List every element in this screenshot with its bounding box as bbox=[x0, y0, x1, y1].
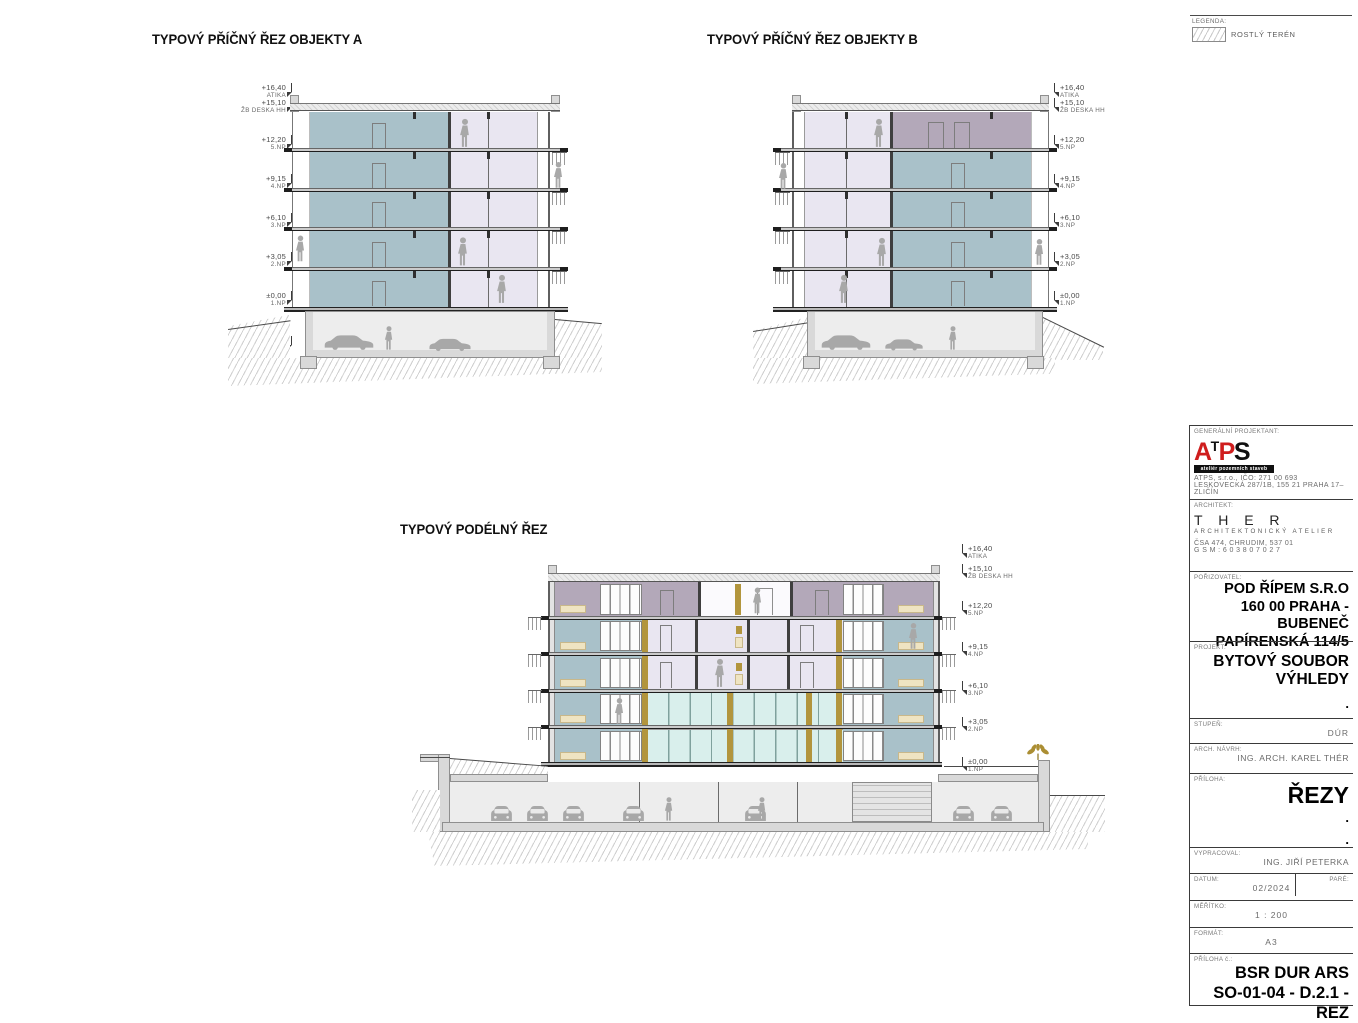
furniture bbox=[898, 715, 924, 723]
wall-tick bbox=[990, 152, 993, 159]
end-wall bbox=[933, 582, 940, 765]
wood-wall-cut bbox=[836, 619, 842, 652]
garage-ceiling bbox=[938, 774, 1038, 782]
level-mark: +12,205.NP bbox=[968, 602, 992, 617]
loggia bbox=[292, 271, 310, 307]
person-icon bbox=[714, 658, 726, 688]
wall-tick bbox=[990, 231, 993, 238]
furniture bbox=[560, 642, 586, 650]
wall-tick bbox=[487, 152, 490, 159]
wall-tick bbox=[487, 231, 490, 238]
loggia bbox=[292, 192, 310, 228]
door-outline bbox=[928, 122, 944, 148]
architect-address: ČSA 474, CHRUDIM, 537 01 bbox=[1194, 540, 1349, 547]
level-mark: +9,154.NP bbox=[1060, 175, 1080, 190]
outer-wall bbox=[792, 152, 805, 188]
outer-wall bbox=[537, 271, 550, 307]
level-mark: +3,052.NP bbox=[1060, 253, 1080, 268]
scale-value: 1 : 200 bbox=[1194, 910, 1349, 920]
car-icon bbox=[488, 805, 515, 822]
car-icon bbox=[884, 336, 924, 352]
wall-tick bbox=[990, 192, 993, 199]
wall-cut bbox=[747, 656, 750, 689]
date-section: DATUM: 02/2024 PARÉ: bbox=[1190, 873, 1353, 900]
floor-slab bbox=[773, 148, 1057, 152]
wall-cut bbox=[695, 619, 698, 652]
terrain-hatch bbox=[753, 358, 1055, 384]
floor-slab bbox=[773, 227, 1057, 231]
wall-cut bbox=[787, 656, 790, 689]
door-outline bbox=[815, 590, 829, 615]
balcony-rail bbox=[775, 271, 790, 284]
loggia bbox=[1031, 271, 1049, 307]
architect-section: ARCHITEKT: T H E R ARCHITEKTONICKÝ ATELI… bbox=[1190, 499, 1353, 571]
slab-tip bbox=[284, 227, 292, 231]
roof-slab bbox=[290, 103, 560, 111]
door-outline bbox=[372, 202, 386, 227]
outer-wall bbox=[537, 231, 550, 267]
ground-slab bbox=[541, 762, 942, 767]
level-mark: +12,205.NP bbox=[232, 136, 286, 151]
car-icon bbox=[988, 805, 1015, 822]
door-outline bbox=[372, 281, 386, 306]
format-section: FORMÁT: A3 bbox=[1190, 927, 1353, 953]
floor-slab bbox=[773, 188, 1057, 192]
slab-tip bbox=[934, 725, 942, 729]
date-value: 02/2024 bbox=[1194, 883, 1349, 893]
wood-wall-cut bbox=[806, 692, 812, 725]
scale-label: MĚŘÍTKO: bbox=[1194, 903, 1349, 910]
wood-wall-cut bbox=[836, 729, 842, 762]
prepared-by-value: ING. JIŘÍ PETERKA bbox=[1194, 857, 1349, 867]
company-line: ATPS, s.r.o., IČO: 271 00 693 bbox=[1194, 475, 1349, 482]
project-label: PROJEKT: bbox=[1194, 644, 1349, 651]
floor-slab bbox=[541, 616, 942, 620]
person-icon bbox=[295, 234, 306, 263]
window-band bbox=[843, 584, 884, 615]
room-lavender bbox=[451, 152, 537, 188]
balcony-rail bbox=[942, 654, 956, 667]
person-icon bbox=[664, 796, 674, 822]
garage-column bbox=[797, 782, 798, 822]
slab-tip bbox=[541, 616, 549, 620]
title-block: GENERÁLNÍ PROJEKTANT: ATPS ateliér pozem… bbox=[1189, 425, 1353, 1006]
footing bbox=[300, 356, 317, 369]
furniture bbox=[735, 637, 743, 648]
footing bbox=[803, 356, 820, 369]
window-band bbox=[843, 658, 884, 688]
slab-tip bbox=[284, 188, 292, 192]
slab-tip bbox=[284, 148, 292, 152]
person-icon bbox=[876, 237, 888, 267]
scale-section: MĚŘÍTKO: 1 : 200 bbox=[1190, 900, 1353, 927]
level-mark: +16,40ATIKA bbox=[1060, 84, 1084, 99]
client-label: POŘIZOVATEL: bbox=[1194, 574, 1349, 581]
wood-wall-cut bbox=[836, 656, 842, 689]
ground-line bbox=[944, 766, 1038, 767]
outer-wall bbox=[537, 192, 550, 228]
person-icon bbox=[496, 273, 508, 305]
level-mark: +16,40ATIKA bbox=[968, 545, 992, 560]
person-icon bbox=[752, 586, 763, 615]
person-icon bbox=[459, 118, 471, 148]
client-line: POD ŘÍPEM S.R.O bbox=[1194, 581, 1349, 599]
wood-block bbox=[736, 626, 742, 634]
window-band bbox=[600, 584, 642, 615]
window-band bbox=[600, 731, 642, 761]
person-icon bbox=[1034, 238, 1045, 266]
outer-wall bbox=[792, 271, 805, 307]
end-wall bbox=[548, 582, 555, 765]
outer-wall bbox=[792, 192, 805, 228]
person-icon bbox=[778, 162, 789, 190]
footing bbox=[543, 356, 560, 369]
wall-cut bbox=[747, 619, 750, 652]
room-lavender bbox=[451, 192, 537, 228]
slab-tip bbox=[934, 689, 942, 693]
footing bbox=[1027, 356, 1044, 369]
project-section: PROJEKT: BYTOVÝ SOUBOR VÝHLEDY . bbox=[1190, 641, 1353, 718]
door-outline bbox=[372, 163, 386, 188]
car-icon bbox=[323, 332, 375, 351]
door-outline bbox=[951, 281, 965, 306]
slab-tip bbox=[541, 689, 549, 693]
floor-slab bbox=[773, 267, 1057, 271]
stage-label: STUPEŇ: bbox=[1194, 721, 1349, 728]
window-band bbox=[843, 731, 884, 761]
terrain-hatch bbox=[412, 790, 440, 832]
arch-design-section: ARCH. NÁVRH: ING. ARCH. KAREL THÉR bbox=[1190, 743, 1353, 773]
person-icon bbox=[908, 622, 919, 650]
prepared-by-label: VYPRACOVAL: bbox=[1194, 850, 1349, 857]
loggia bbox=[292, 152, 310, 188]
balcony-rail bbox=[528, 617, 542, 630]
client-section: POŘIZOVATEL: POD ŘÍPEM S.R.O 160 00 PRAH… bbox=[1190, 571, 1353, 641]
drawing-sheet: { "colors": { "wall_blue_gray": "#a9c1c9… bbox=[0, 0, 1358, 960]
loggia bbox=[1031, 112, 1049, 148]
slab-tip bbox=[934, 652, 942, 656]
wall-cut bbox=[695, 656, 698, 689]
level-mark: +16,40ATIKA bbox=[232, 84, 286, 99]
cell-divider bbox=[1295, 874, 1296, 896]
slab-tip bbox=[1049, 148, 1057, 152]
car-icon bbox=[524, 805, 551, 822]
wood-block bbox=[736, 663, 742, 671]
door-outline bbox=[800, 662, 814, 688]
dot-placeholder: . bbox=[1194, 699, 1349, 709]
outer-wall bbox=[792, 112, 805, 148]
loggia bbox=[1031, 192, 1049, 228]
furniture bbox=[560, 679, 586, 687]
level-mark: ±0,001.NP bbox=[232, 292, 286, 307]
car-icon bbox=[428, 336, 472, 352]
company-line: LESKOVECKÁ 287/1B, 155 21 PRAHA 17–ZLIČÍ… bbox=[1194, 482, 1349, 496]
annex-value: ŘEZY bbox=[1194, 783, 1349, 807]
slab-tip bbox=[1049, 227, 1057, 231]
slab-tip bbox=[541, 652, 549, 656]
loggia bbox=[1031, 152, 1049, 188]
slab-tip bbox=[1049, 188, 1057, 192]
architect-label: ARCHITEKT: bbox=[1194, 502, 1349, 509]
floor-slab bbox=[284, 227, 568, 231]
legend-terrain-label: ROSTLÝ TERÉN bbox=[1231, 30, 1296, 39]
wall-cut bbox=[698, 582, 701, 616]
annex-number-section: PŘÍLOHA č.: BSR DUR ARS SO-01-04 - D.2.1… bbox=[1190, 953, 1353, 1005]
ground-line bbox=[420, 757, 450, 758]
level-mark: +15,10ŽB DESKA HH bbox=[232, 99, 286, 114]
room-lavender bbox=[451, 271, 537, 307]
wall-tick bbox=[487, 271, 490, 278]
door-outline bbox=[951, 202, 965, 227]
car-icon bbox=[620, 805, 647, 822]
door-outline bbox=[372, 123, 386, 148]
wall-tick bbox=[413, 152, 416, 159]
wood-wall-cut bbox=[642, 619, 648, 652]
window-band bbox=[843, 621, 884, 651]
longitudinal-title: TYPOVÝ PODÉLNÝ ŘEZ bbox=[400, 521, 547, 537]
person-icon bbox=[948, 325, 958, 351]
architect-subtitle: ARCHITEKTONICKÝ ATELIER bbox=[1194, 528, 1349, 535]
wall-cut bbox=[790, 582, 793, 616]
wall-tick bbox=[413, 112, 416, 119]
dot-placeholder: . bbox=[1194, 813, 1349, 823]
door-outline bbox=[951, 242, 965, 267]
level-mark: +3,052.NP bbox=[232, 253, 286, 268]
annex-number-line: SO-01-04 - D.2.1 - REZ bbox=[1194, 983, 1349, 1023]
car-icon bbox=[950, 805, 977, 822]
floor-slab bbox=[541, 652, 942, 656]
atps-logo-subtitle: ateliér pozemních staveb bbox=[1194, 465, 1274, 473]
floor-slab bbox=[541, 689, 942, 693]
wall-tick bbox=[413, 231, 416, 238]
wood-wall-cut bbox=[836, 692, 842, 725]
legend-divider bbox=[1190, 15, 1352, 16]
wall-tick bbox=[990, 112, 993, 119]
balcony-rail bbox=[775, 192, 790, 205]
slab-tip bbox=[1049, 267, 1057, 271]
dot-placeholder: . bbox=[1194, 835, 1349, 845]
person-icon bbox=[614, 697, 625, 725]
car-icon bbox=[820, 332, 872, 351]
window-band bbox=[600, 658, 642, 688]
balcony-rail bbox=[942, 617, 956, 630]
level-mark: +9,154.NP bbox=[232, 175, 286, 190]
project-line: VÝHLEDY bbox=[1194, 671, 1349, 689]
wall-tick bbox=[990, 271, 993, 278]
terrain-hatch bbox=[1050, 795, 1105, 832]
prepared-by-section: VYPRACOVAL: ING. JIŘÍ PETERKA bbox=[1190, 847, 1353, 873]
car-icon bbox=[560, 805, 587, 822]
glazing bbox=[648, 729, 843, 762]
wood-wall-cut bbox=[642, 656, 648, 689]
garage-door bbox=[852, 782, 932, 822]
wall-tick bbox=[845, 152, 848, 159]
door-outline bbox=[951, 163, 965, 188]
floor-slab bbox=[284, 188, 568, 192]
door-outline bbox=[800, 625, 814, 651]
furniture bbox=[898, 605, 924, 613]
balcony-rail bbox=[942, 727, 956, 740]
architect-gsm: G S M : 6 0 3 8 0 7 0 2 7 bbox=[1194, 547, 1349, 554]
level-mark: +12,205.NP bbox=[1060, 136, 1084, 151]
level-mark: +15,10ŽB DESKA HH bbox=[1060, 99, 1105, 114]
outer-wall bbox=[537, 152, 550, 188]
balcony-rail bbox=[552, 192, 567, 205]
person-icon bbox=[384, 325, 394, 351]
furniture bbox=[560, 752, 586, 760]
wood-wall-cut bbox=[735, 584, 741, 615]
general-designer-section: GENERÁLNÍ PROJEKTANT: ATPS ateliér pozem… bbox=[1190, 425, 1353, 499]
wall-tick bbox=[845, 192, 848, 199]
balcony-rail bbox=[528, 690, 542, 703]
person-icon bbox=[838, 273, 850, 305]
section-a-title: TYPOVÝ PŘÍČNÝ ŘEZ OBJEKTY A bbox=[152, 31, 362, 47]
balcony-rail bbox=[552, 231, 567, 244]
furniture bbox=[560, 605, 586, 613]
balcony-rail bbox=[942, 690, 956, 703]
legend-title: LEGENDA: bbox=[1192, 18, 1226, 25]
wall-tick bbox=[845, 231, 848, 238]
atps-logo: ATPS bbox=[1194, 435, 1349, 464]
garage-column bbox=[718, 782, 719, 822]
wood-wall-cut bbox=[727, 692, 733, 725]
date-label: DATUM: bbox=[1194, 876, 1349, 883]
door-outline bbox=[660, 625, 672, 651]
level-mark: +6,103.NP bbox=[968, 682, 988, 697]
furniture bbox=[898, 752, 924, 760]
balcony-rail bbox=[528, 727, 542, 740]
level-mark: +6,103.NP bbox=[232, 214, 286, 229]
terrain-hatch bbox=[753, 315, 807, 360]
architect-name: T H E R bbox=[1194, 512, 1349, 528]
furniture bbox=[898, 679, 924, 687]
wall-cut bbox=[787, 619, 790, 652]
wood-wall-cut bbox=[642, 692, 648, 725]
terrain-hatch bbox=[228, 313, 290, 360]
door-outline bbox=[660, 590, 674, 615]
format-label: FORMÁT: bbox=[1194, 930, 1349, 937]
wood-wall-cut bbox=[727, 729, 733, 762]
roof-slab bbox=[548, 573, 940, 582]
window-band bbox=[843, 694, 884, 724]
slab-tip bbox=[284, 267, 292, 271]
wall-tick bbox=[413, 192, 416, 199]
floor-slab bbox=[541, 725, 942, 729]
pare-label: PARÉ: bbox=[1329, 876, 1349, 883]
wall-tick bbox=[487, 192, 490, 199]
wall-tick bbox=[413, 271, 416, 278]
level-mark: +3,052.NP bbox=[968, 718, 988, 733]
furniture bbox=[735, 674, 743, 685]
balcony-rail bbox=[775, 231, 790, 244]
person-icon bbox=[873, 118, 885, 148]
general-designer-label: GENERÁLNÍ PROJEKTANT: bbox=[1194, 428, 1349, 435]
person-icon bbox=[757, 796, 767, 822]
window-band bbox=[600, 621, 642, 651]
annex-number-line: BSR DUR ARS bbox=[1194, 963, 1349, 983]
terrain-hatch bbox=[450, 758, 548, 774]
level-mark: +6,103.NP bbox=[1060, 214, 1080, 229]
terrain-hatch-swatch bbox=[1192, 27, 1226, 42]
slab-tip bbox=[934, 616, 942, 620]
loggia bbox=[292, 112, 310, 148]
arch-design-value: ING. ARCH. KAREL THÉR bbox=[1194, 753, 1349, 763]
balcony-rail bbox=[552, 271, 567, 284]
terrain-hatch bbox=[555, 318, 602, 360]
terrain-hatch bbox=[428, 832, 1088, 866]
slab-tip bbox=[541, 725, 549, 729]
floor-slab bbox=[284, 267, 568, 271]
garage-ceiling bbox=[450, 774, 548, 782]
section-b-title: TYPOVÝ PŘÍČNÝ ŘEZ OBJEKTY B bbox=[707, 31, 918, 47]
wood-wall-cut bbox=[642, 729, 648, 762]
level-mark: +15,10ŽB DESKA HH bbox=[968, 565, 1013, 580]
plant-icon bbox=[1024, 744, 1052, 761]
level-mark: ±0,001.NP bbox=[1060, 292, 1080, 307]
glazing bbox=[648, 692, 843, 725]
wall-tick bbox=[845, 112, 848, 119]
wood-wall-cut bbox=[806, 729, 812, 762]
room-white bbox=[700, 582, 790, 616]
stage-section: STUPEŇ: DÚR bbox=[1190, 718, 1353, 743]
outer-wall bbox=[792, 231, 805, 267]
outer-wall bbox=[537, 112, 550, 148]
person-icon bbox=[553, 161, 564, 189]
door-outline bbox=[660, 662, 672, 688]
roof-slab bbox=[792, 103, 1049, 111]
format-value: A3 bbox=[1194, 937, 1349, 947]
person-icon bbox=[457, 236, 469, 267]
balcony-rail bbox=[528, 654, 542, 667]
garage-floor-slab bbox=[442, 822, 1044, 832]
project-line: BYTOVÝ SOUBOR bbox=[1194, 653, 1349, 671]
floor-slab bbox=[284, 148, 568, 152]
furniture bbox=[560, 715, 586, 723]
door-outline bbox=[954, 122, 970, 148]
stage-value: DÚR bbox=[1194, 728, 1349, 738]
client-line: 160 00 PRAHA - BUBENEČ bbox=[1194, 599, 1349, 634]
arch-design-label: ARCH. NÁVRH: bbox=[1194, 746, 1349, 753]
door-outline bbox=[372, 242, 386, 267]
level-mark: +9,154.NP bbox=[968, 643, 988, 658]
wall-tick bbox=[487, 112, 490, 119]
annex-section: PŘÍLOHA: ŘEZY . . bbox=[1190, 773, 1353, 847]
